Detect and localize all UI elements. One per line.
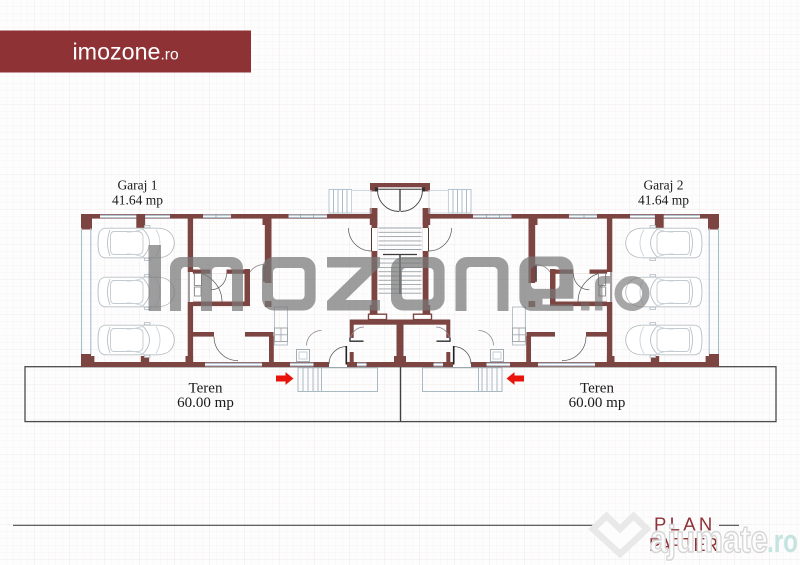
svg-text:.ro: .ro [161,47,179,64]
svg-text:60.00 mp: 60.00 mp [177,395,234,411]
svg-text:41.64 mp: 41.64 mp [638,192,689,207]
svg-text:imozone: imozone [73,39,161,65]
svg-text:Garaj 2: Garaj 2 [643,178,683,193]
svg-text:ajumate: ajumate [650,519,768,561]
svg-text:41.64 mp: 41.64 mp [112,192,163,207]
svg-text:Garaj 1: Garaj 1 [117,178,157,193]
svg-text:.ro: .ro [767,523,798,559]
svg-text:60.00 mp: 60.00 mp [569,395,626,411]
